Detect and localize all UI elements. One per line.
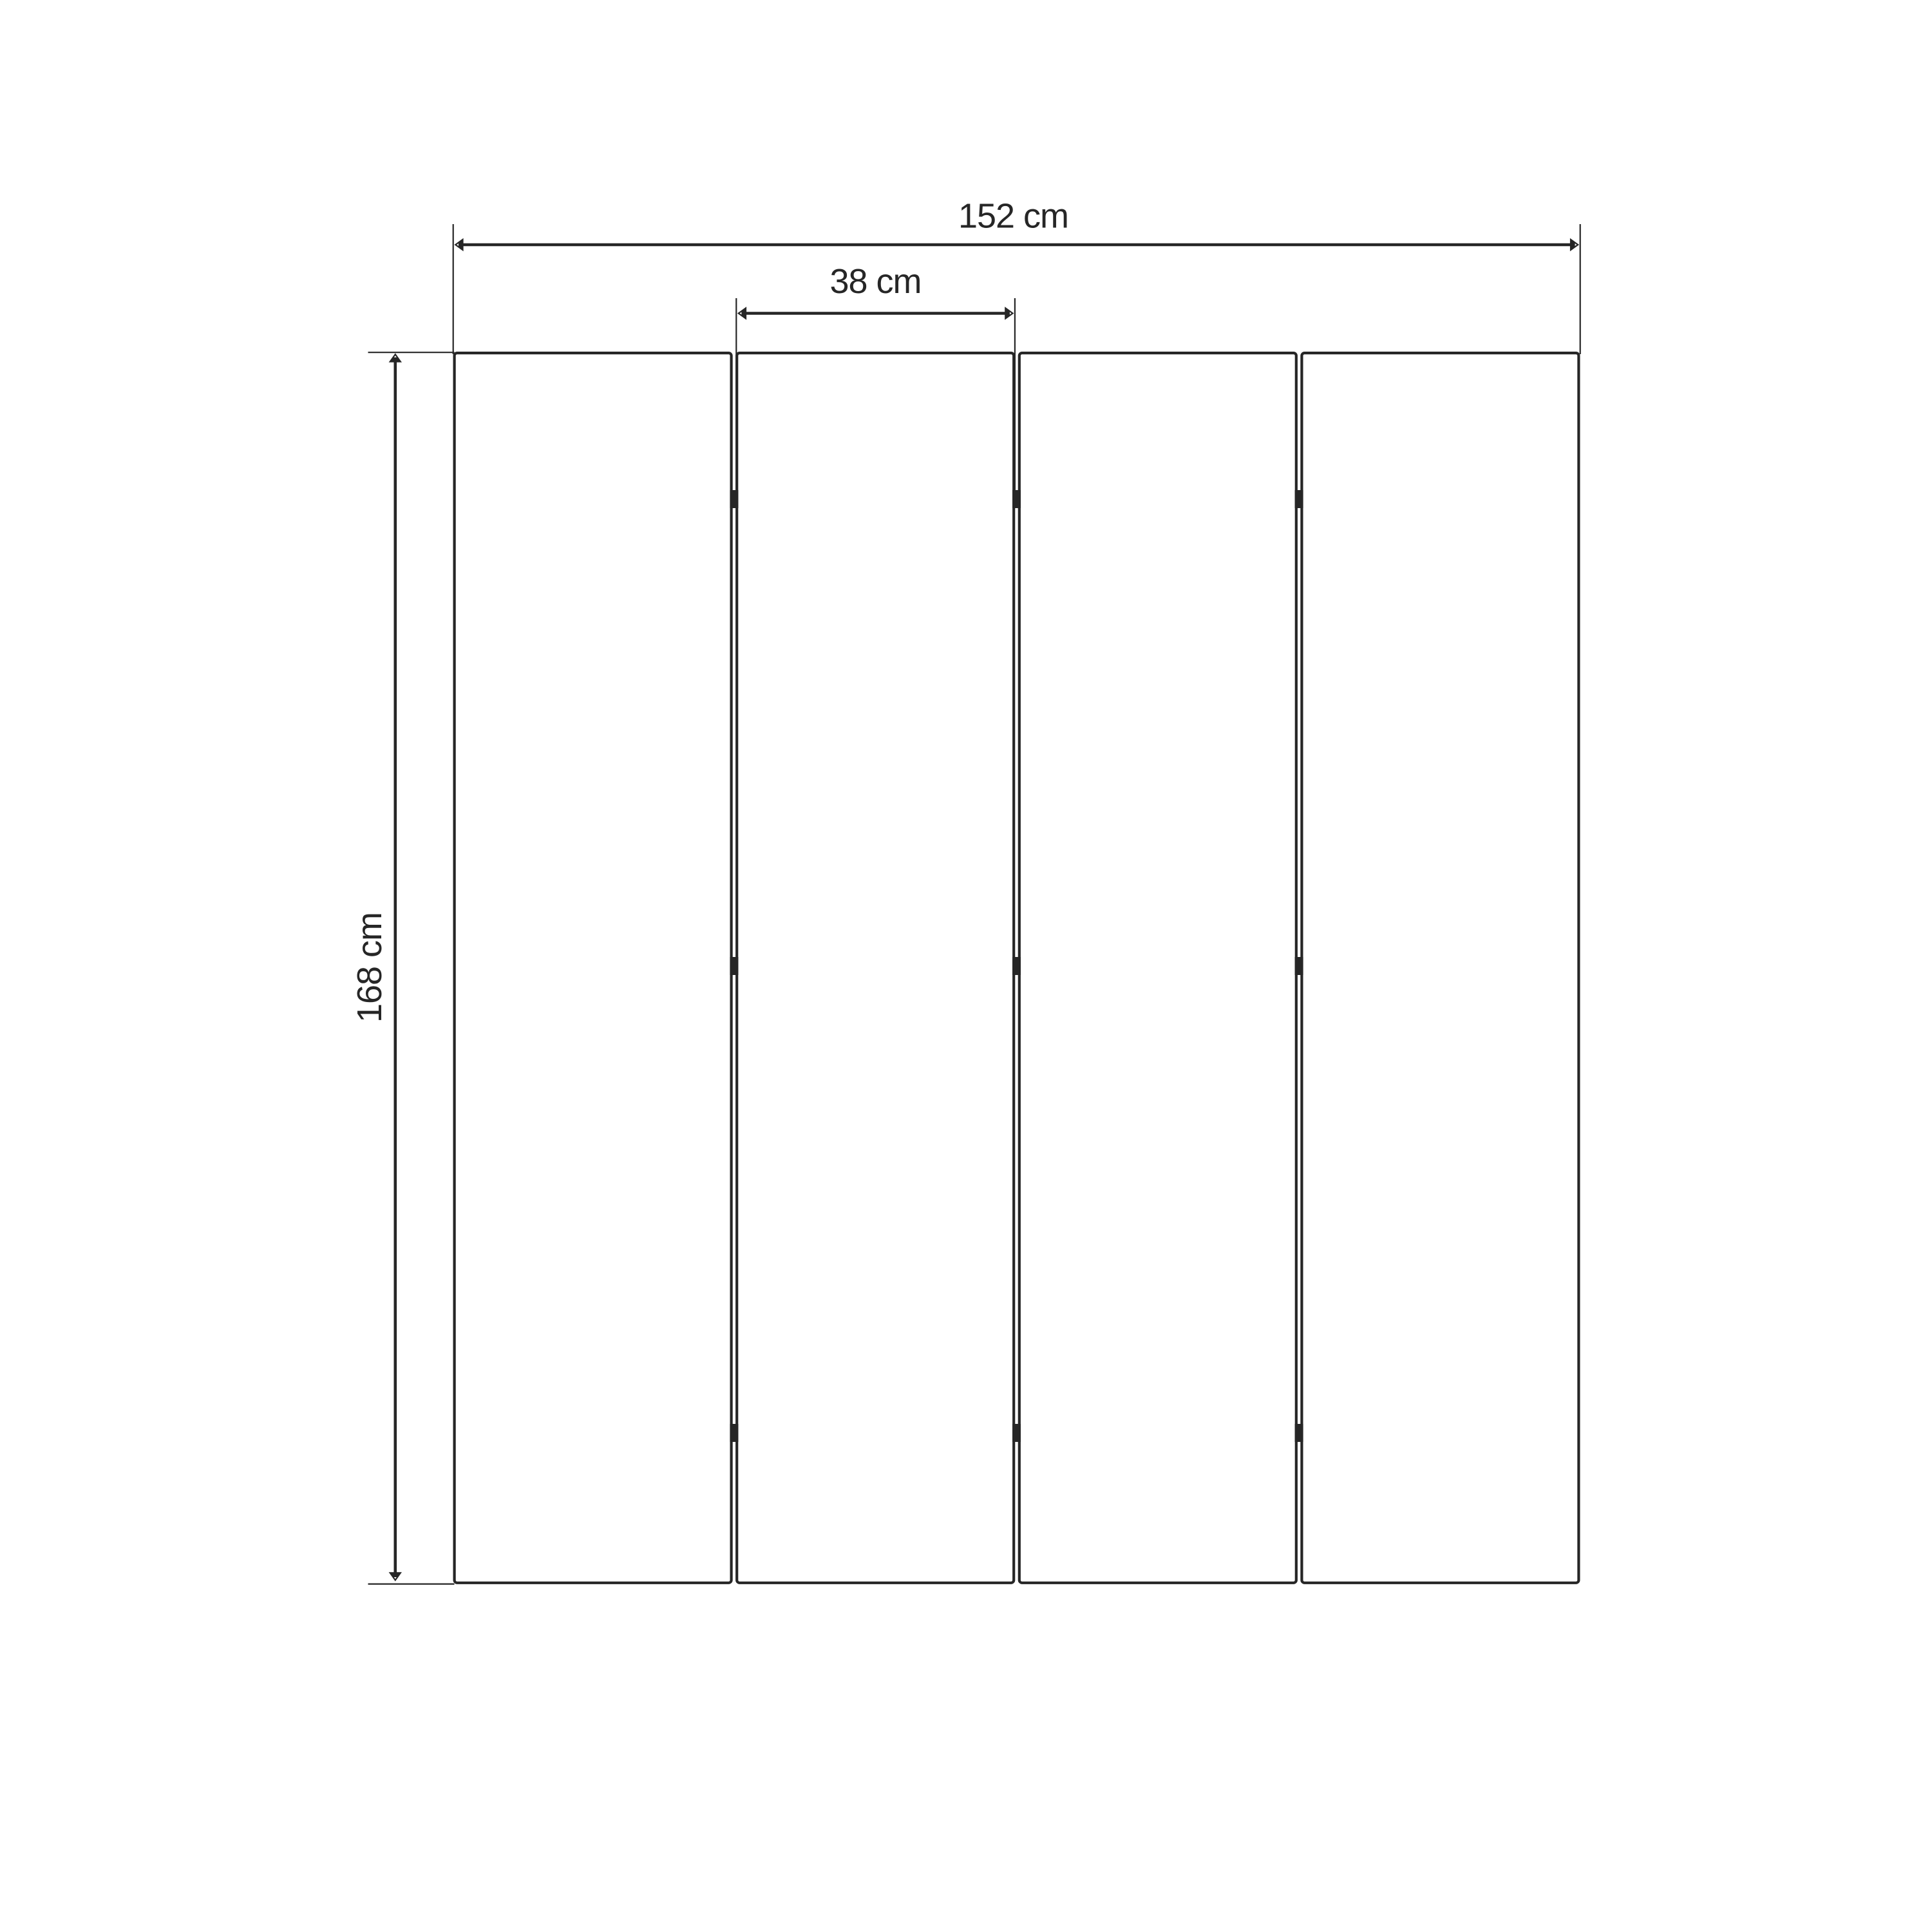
- svg-text:38 cm: 38 cm: [829, 262, 921, 301]
- svg-text:152 cm: 152 cm: [958, 197, 1068, 236]
- svg-text:168 cm: 168 cm: [350, 913, 389, 1023]
